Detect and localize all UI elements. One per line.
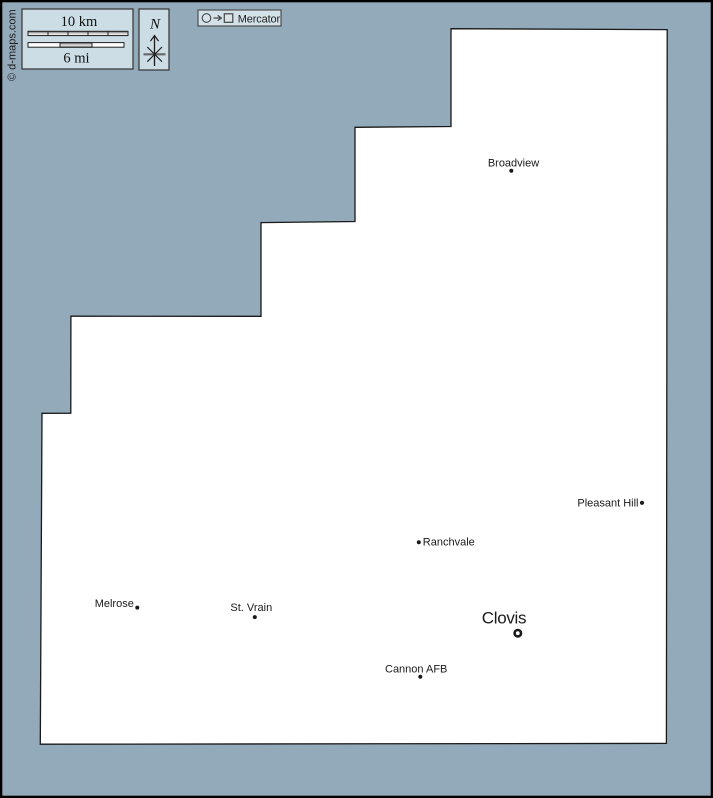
- svg-text:St. Vrain: St. Vrain: [230, 602, 272, 614]
- svg-text:Pleasant Hill: Pleasant Hill: [577, 497, 638, 509]
- svg-text:© d-maps.com: © d-maps.com: [7, 9, 19, 81]
- svg-text:6 mi: 6 mi: [63, 51, 89, 67]
- svg-text:Broadview: Broadview: [488, 157, 539, 169]
- svg-text:N: N: [149, 17, 161, 33]
- svg-text:Cannon AFB: Cannon AFB: [385, 663, 447, 675]
- svg-text:Melrose: Melrose: [95, 598, 134, 610]
- svg-text:Clovis: Clovis: [482, 608, 527, 627]
- svg-text:10 km: 10 km: [61, 14, 98, 30]
- svg-text:Ranchvale: Ranchvale: [423, 536, 475, 548]
- svg-text:Mercator: Mercator: [238, 14, 281, 26]
